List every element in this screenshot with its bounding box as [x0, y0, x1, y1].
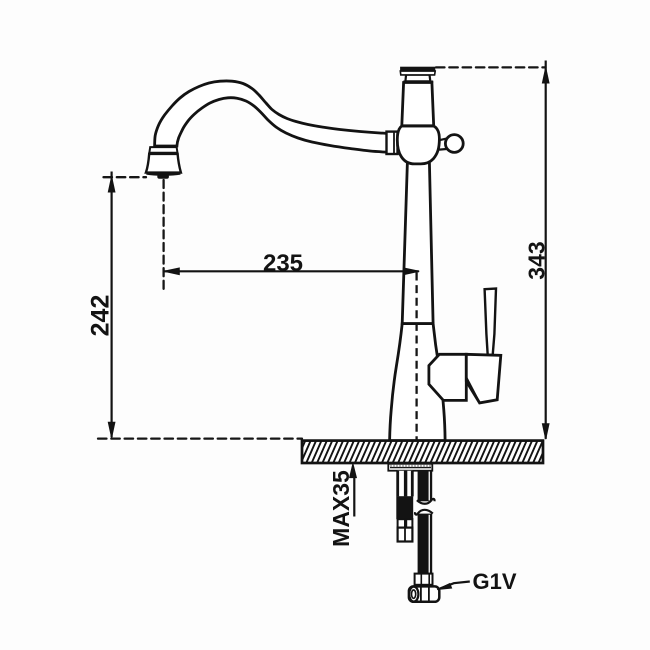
svg-text:242: 242	[87, 295, 115, 337]
svg-text:G1V: G1V	[473, 569, 517, 594]
svg-text:MAX35: MAX35	[328, 470, 354, 547]
svg-text:343: 343	[524, 241, 550, 279]
svg-text:235: 235	[263, 250, 303, 277]
